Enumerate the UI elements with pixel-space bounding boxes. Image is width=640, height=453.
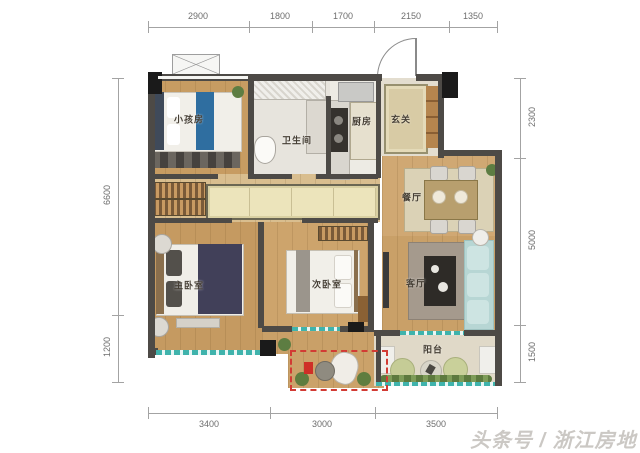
dimension-label: 1800 [270,11,290,21]
room-label-foyer: 玄关 [391,113,411,126]
wall-kitchen-foyer [376,78,381,178]
dimension-tick [514,78,526,79]
dimension-line [118,78,119,382]
column-second-bottom [348,322,364,332]
second-wardrobe [318,226,368,241]
dimension-label: 3000 [312,419,332,429]
round-table-icon [315,361,335,381]
wall-kids-bathroom [248,78,254,174]
hallway-wardrobe [152,182,206,199]
dining-chair [430,219,448,234]
desk [358,296,368,322]
master-duvet [198,244,242,314]
dimension-label: 3500 [426,419,446,429]
sofa-cushion [467,246,489,270]
sofa-cushion [467,273,489,297]
coffee-table [424,256,456,306]
column-top-right [442,72,458,98]
red-tag-icon [304,362,313,374]
plate-icon [432,190,446,204]
watermark-text: 头条号 / 浙江房地产 [470,424,640,453]
dimension-label: 5000 [527,222,537,258]
second-bed-runner [296,250,310,312]
dimension-label: 6600 [102,177,112,213]
cooktop-icon [331,108,348,152]
kids-pillow [167,124,180,145]
dimension-tick [374,21,375,33]
kitchen-sink-icon [338,82,374,102]
dimension-label: 2900 [188,11,208,21]
dimension-line [148,413,497,414]
dimension-label: 1350 [463,11,483,21]
entry-door-arc-icon [377,38,416,77]
wall-right [495,150,502,386]
wall-hallway-top-c [316,174,378,179]
dimension-tick [514,158,526,159]
wall-living-balcony-b [464,330,496,336]
tv-icon [383,252,389,308]
room-label-second-bedroom: 次卧室 [312,278,342,291]
window-master-bottom [156,350,260,355]
room-label-kids-bedroom: 小孩房 [174,113,204,126]
dimension-tick [148,21,149,33]
sofa-cushion [467,300,489,324]
window-balcony-bottom [376,382,495,386]
dimension-label: 1200 [102,329,112,365]
dining-chair [458,166,476,181]
shaft-hatch [252,80,326,100]
plant-icon [295,372,309,386]
kids-wardrobe [152,152,240,168]
planter-box [479,346,496,374]
dimension-line [148,27,497,28]
column-master-bottom [260,340,276,356]
wall-step-top-right [438,150,502,156]
dimension-tick [375,407,376,419]
plant-icon [232,86,244,98]
dimension-tick [270,407,271,419]
table-decor-icon [431,265,439,273]
room-label-bathroom: 卫生间 [282,134,312,147]
room-label-living-room: 客厅 [406,277,426,290]
side-table-icon [472,229,489,246]
hallway-cabinet [206,184,380,220]
dimension-label: 1700 [333,11,353,21]
wall-master-second [258,222,264,328]
dimension-tick [112,382,124,383]
dimension-tick [112,78,124,79]
dimension-tick [497,407,498,419]
room-label-dining-room: 餐厅 [402,191,422,204]
toilet-icon [254,136,276,164]
dimension-label: 2300 [527,99,537,135]
wall-left [148,74,155,358]
room-label-master-bedroom: 主卧室 [174,279,204,292]
kitchen-island [350,102,378,160]
burner-icon [334,134,343,143]
second-pillow [334,255,352,280]
window-second-bottom [292,327,340,331]
hallway-wardrobe [152,199,206,216]
plant-icon [357,372,371,386]
dimension-label: 3400 [199,419,219,429]
dimension-tick [249,21,250,33]
room-label-kitchen: 厨房 [352,115,372,128]
dimension-tick [514,382,526,383]
ac-unit-box-icon [172,54,220,75]
table-decor-icon [438,282,448,292]
wall-second-living [368,222,374,332]
dimension-tick [514,325,526,326]
stool-icon [152,234,172,254]
entry-door-leaf [415,38,417,76]
dimension-tick [148,407,149,419]
window-kids-top [158,76,248,79]
wall-hallway-bottom-b [302,218,378,223]
dimension-label: 1500 [527,334,537,370]
floor-plan-canvas: 2900 1800 1700 2150 1350 6600 1200 2300 … [0,0,640,453]
dimension-line [520,78,521,382]
burner-icon [334,116,343,125]
plant-icon [278,338,291,351]
wall-hallway-top-b [248,174,292,179]
wall-bathroom-kitchen [326,96,331,176]
master-bed-headboard [156,244,164,314]
wall-hallway-top-a [154,174,218,179]
dimension-label: 2150 [401,11,421,21]
master-pillow [166,250,182,276]
dimension-tick [112,315,124,316]
dimension-tick [497,21,498,33]
window-living-balcony [400,331,464,335]
wall-hallway-bottom-a [154,218,232,223]
dimension-tick [449,21,450,33]
room-label-balcony: 阳台 [423,343,443,356]
wall-second-bottom-a [262,326,292,332]
plate-icon [454,190,468,204]
bed-bench [176,318,220,328]
dining-chair [430,166,448,181]
dimension-tick [312,21,313,33]
